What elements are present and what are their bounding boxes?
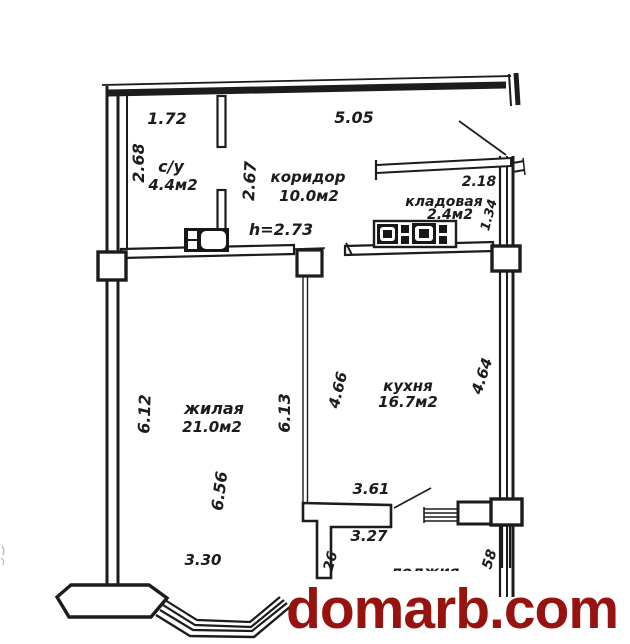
bay-window-hexagon [57, 585, 167, 617]
room-area-kitchen: 16.7м2 [378, 393, 438, 411]
watermark-text: domarb.com [286, 577, 618, 641]
dim-living-right: 6.13 [275, 393, 294, 432]
column-corridor [297, 250, 322, 276]
column-right-lower [491, 499, 522, 525]
storage-knob-3 [439, 225, 447, 233]
dim-corridor-partition: 2.67 [239, 160, 260, 201]
wall-storage-top [376, 158, 511, 173]
ceiling-height-label: h=2.73 [249, 220, 313, 239]
storage-unit-right-core [419, 229, 429, 238]
walls [57, 73, 525, 637]
room-area-corridor: 10.0м2 [279, 187, 339, 205]
dim-storage-top: 2.18 [462, 174, 497, 190]
wall-right-tick2 [513, 170, 524, 172]
leader-loggia [394, 488, 431, 508]
dim-loggia-width: 3.27 [350, 527, 388, 545]
bath-toilet [201, 231, 226, 249]
room-area-living: 21.0м2 [182, 418, 242, 436]
storage-knob-1 [401, 225, 409, 233]
leader-top-right [459, 121, 506, 155]
floor-plan: 1.72 5.05 с/у 4.4м2 2.68 коридор 10.0м2 … [0, 0, 630, 644]
dim-bathroom-left: 2.68 [129, 143, 148, 182]
dim-loggia-right-partial: 58 [479, 547, 500, 571]
wall-right-tick3 [523, 158, 525, 175]
dim-living-inner-height: 6.56 [208, 470, 232, 512]
bath-sink-top [188, 231, 197, 239]
scan-speck-2 [1, 558, 4, 565]
dim-kitchen-left: 4.66 [325, 370, 352, 411]
dim-bathroom-top: 1.72 [147, 109, 186, 128]
dim-kitchen-right: 4.64 [467, 356, 496, 398]
storage-knob-4 [439, 236, 447, 244]
storage-unit-left-core [383, 230, 392, 238]
storage-knob-2 [401, 236, 409, 244]
room-area-storage: 2.4м2 [427, 207, 473, 223]
dim-corridor-top: 5.05 [334, 108, 373, 127]
dim-living-left: 6.12 [134, 394, 154, 434]
room-area-bathroom: 4.4м2 [147, 176, 197, 194]
wall-right-tick1 [513, 161, 524, 163]
room-label-bathroom: с/у [158, 157, 184, 176]
wall-top-cap-thin [509, 74, 511, 106]
scan-artifacts [1, 546, 4, 565]
wall-bath-partition-upper [218, 96, 226, 147]
bath-sink-bottom [188, 241, 197, 249]
dim-loggia-top: 3.61 [352, 480, 389, 498]
bathroom-fixtures-icon [184, 228, 229, 252]
storage-fixtures-icon [374, 221, 456, 247]
wall-top-cap-thick [516, 73, 518, 105]
column-right-upper [492, 246, 520, 271]
room-label-corridor: коридор [271, 168, 346, 186]
room-label-living: жилая [183, 399, 244, 418]
scan-speck-1 [2, 546, 4, 555]
column-left-wall [98, 252, 126, 280]
wall-top-thick [108, 85, 506, 93]
dim-living-bay-width: 3.30 [184, 551, 221, 569]
columns [98, 246, 522, 525]
